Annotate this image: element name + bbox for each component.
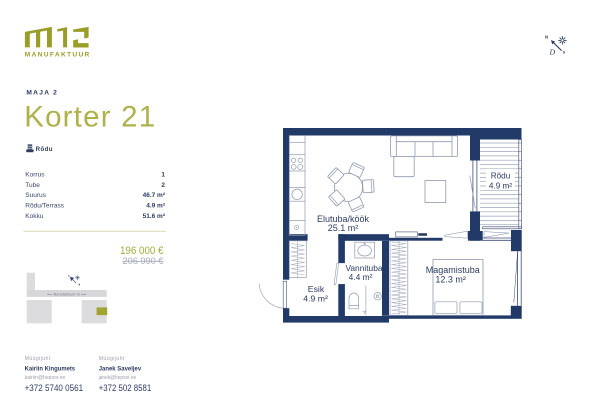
svg-text:46.7 m²: 46.7 m² (143, 192, 166, 199)
svg-text:Suurus: Suurus (25, 192, 46, 199)
svg-text:MANUFAKTUUR: MANUFAKTUUR (25, 51, 90, 58)
svg-text:Müügijuht: Müügijuht (99, 356, 125, 362)
svg-text:s: s (563, 50, 566, 55)
svg-text:MAJA 2: MAJA 2 (26, 90, 58, 97)
svg-text:s: s (79, 283, 81, 287)
svg-text:12.3 m²: 12.3 m² (435, 275, 466, 285)
svg-text:Rõdu/Terrass: Rõdu/Terrass (25, 203, 64, 210)
svg-text:N: N (545, 34, 548, 39)
svg-text:janek@hepsor.ee: janek@hepsor.ee (98, 375, 136, 381)
svg-text:D: D (549, 48, 556, 57)
svg-text:Rõdu: Rõdu (491, 171, 511, 180)
svg-text:Rõdu: Rõdu (36, 146, 53, 153)
svg-text:4.9 m²: 4.9 m² (303, 293, 328, 303)
svg-text:25.1 m²: 25.1 m² (328, 223, 359, 233)
svg-text:2: 2 (161, 182, 165, 189)
svg-text:Müügijuht: Müügijuht (25, 356, 51, 362)
svg-text:4.9 m²: 4.9 m² (146, 203, 166, 210)
svg-text:4.4 m²: 4.4 m² (349, 272, 373, 282)
svg-text:4.9 m²: 4.9 m² (489, 181, 512, 190)
svg-text:51.6 m²: 51.6 m² (143, 213, 166, 220)
svg-text:Kokku: Kokku (25, 213, 43, 220)
svg-text:1: 1 (161, 172, 165, 179)
svg-text:+372 502 8581: +372 502 8581 (99, 383, 152, 393)
svg-text:⟵ Manufaktuuri tn ⟶: ⟵ Manufaktuuri tn ⟶ (47, 292, 86, 296)
svg-text:Esik: Esik (308, 284, 325, 294)
svg-text:Korter 21: Korter 21 (24, 100, 156, 133)
svg-text:N: N (68, 274, 70, 278)
svg-text:206 990 €: 206 990 € (123, 256, 164, 266)
svg-text:Tube: Tube (25, 182, 40, 189)
svg-text:Kairiin Kingumets: Kairiin Kingumets (25, 366, 76, 373)
svg-text:+372 5740 0561: +372 5740 0561 (25, 383, 84, 393)
svg-text:Janek Saveljev: Janek Saveljev (99, 366, 142, 373)
svg-text:kairiin@hepsor.ee: kairiin@hepsor.ee (25, 375, 66, 381)
svg-text:Korrus: Korrus (25, 172, 45, 179)
